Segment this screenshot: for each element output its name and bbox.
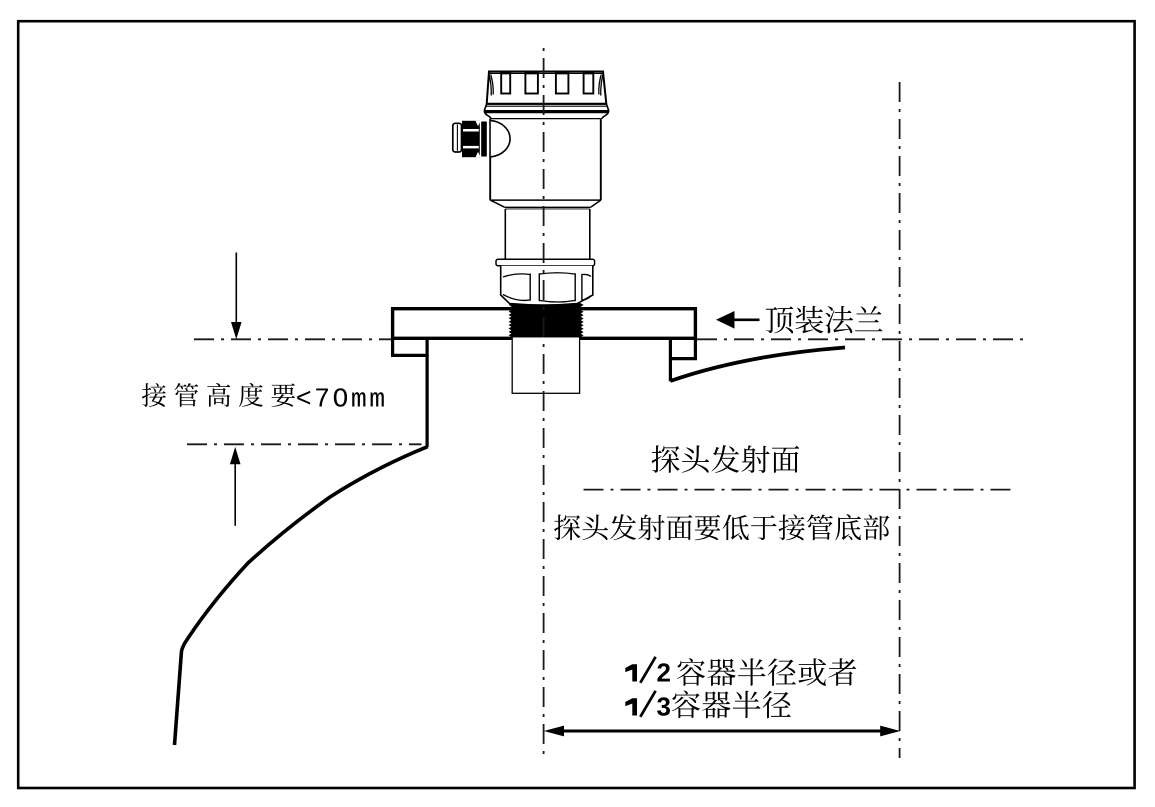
svg-text:3: 3 (657, 692, 671, 722)
svg-text:<7Omm: <7Omm (296, 385, 388, 415)
svg-text:2: 2 (657, 658, 671, 688)
